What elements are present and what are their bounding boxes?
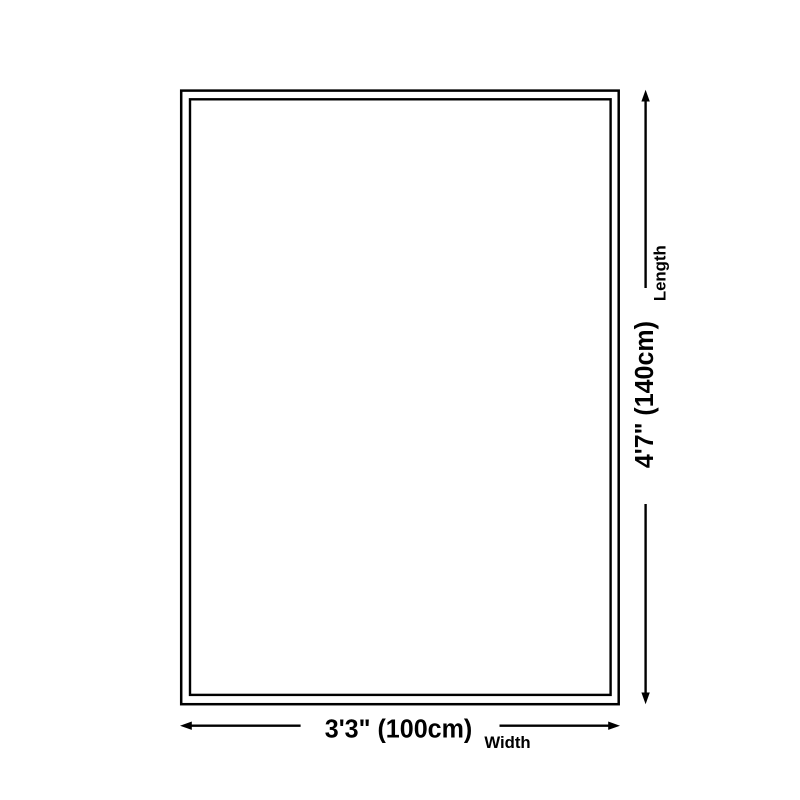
svg-text:3'3" (100cm): 3'3" (100cm)	[325, 716, 473, 744]
svg-text:Width: Width	[484, 733, 530, 752]
svg-text:Length: Length	[651, 245, 670, 301]
svg-text:4'7" (140cm): 4'7" (140cm)	[631, 321, 659, 468]
